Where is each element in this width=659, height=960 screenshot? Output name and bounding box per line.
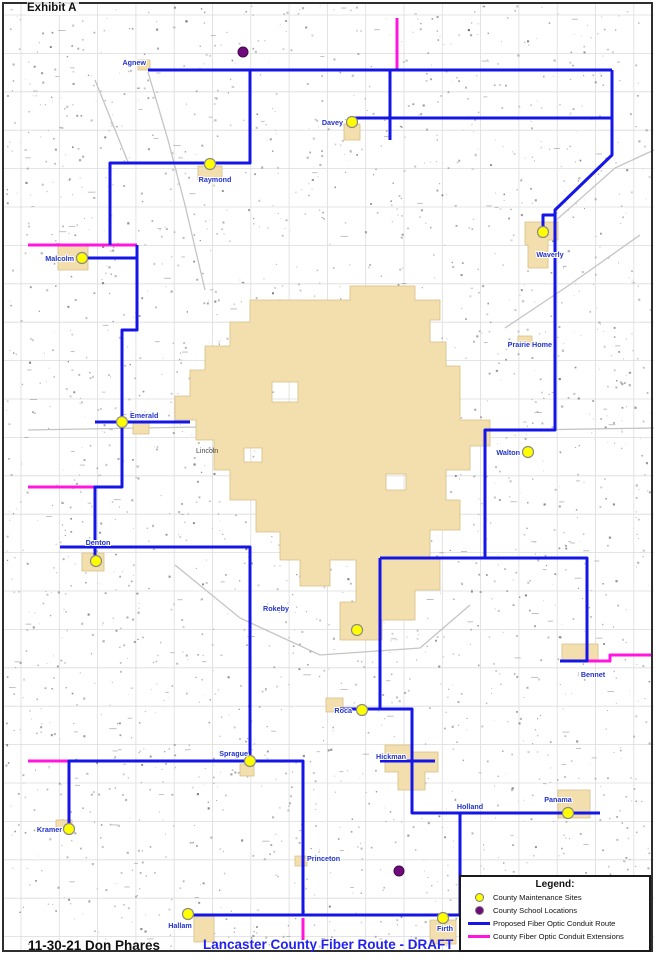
fiber-route-blue-segment [60,547,250,829]
fiber-extension-line-icon [468,935,490,938]
legend-box: Legend: County Maintenance Sites County … [459,875,651,952]
maintenance-site-dot-roca [357,705,368,716]
legend-title: Legend: [465,879,645,890]
maintenance-site-dot-hallam [183,909,194,920]
maintenance-site-dot-unlabeled [352,625,363,636]
site-label-walton: Walton [496,448,520,457]
school-location-dot-icon [475,906,484,915]
maintenance-site-dot-emerald [117,417,128,428]
place-label-hickman: Hickman [376,752,406,761]
fiber-route-blue-segment [82,245,137,258]
legend-item-label: County School Locations [493,906,577,915]
site-label-davey: Davey [322,118,343,127]
maintenance-site-dot-denton [91,556,102,567]
legend-symbol-cell [465,906,493,915]
map-page: DaveyRaymondMalcolmWaverlyEmeraldWaltonD… [0,0,659,960]
city-area-lincoln [175,286,490,640]
maintenance-site-dot-walton [523,447,534,458]
town-area-bennet [562,644,598,660]
place-label-bennet: Bennet [581,670,606,679]
exhibit-label: Exhibit A [27,2,79,15]
site-label-sprague: Sprague [219,749,248,758]
legend-item-school-locations: County School Locations [465,904,645,917]
legend-item-conduit-extensions: County Fiber Optic Conduit Extensions [465,930,645,943]
place-label-agnew: Agnew [122,58,146,67]
maintenance-site-dot-malcolm [77,253,88,264]
town-area-princeton [295,856,307,866]
fiber-route-blue-segment [485,70,612,661]
legend-item-label: County Maintenance Sites [493,893,582,902]
site-label-kramer: Kramer [37,825,62,834]
county-fiber-map: DaveyRaymondMalcolmWaverlyEmeraldWaltonD… [0,0,659,960]
site-label-raymond: Raymond [199,175,232,184]
site-label-waverly: Waverly [536,250,563,259]
site-label-malcolm: Malcolm [45,254,74,263]
maintenance-site-dot-panama [563,808,574,819]
legend-symbol-cell [465,922,493,925]
maintenance-site-dot-firth [438,913,449,924]
legend-item-label: County Fiber Optic Conduit Extensions [493,932,624,941]
school-location-dot-1 [394,866,404,876]
legend-item-label: Proposed Fiber Optic Conduit Route [493,919,615,928]
school-location-dot-0 [238,47,248,57]
fiber-route-blue-segment [250,761,303,915]
maintenance-site-dot-raymond [205,159,216,170]
site-label-denton: Denton [86,538,111,547]
legend-symbol-cell [465,893,493,902]
maintenance-site-dot-icon [475,893,484,902]
maintenance-site-dot-davey [347,117,358,128]
site-label-emerald: Emerald [130,411,158,420]
city-label-lincoln: Lincoln [196,448,218,455]
legend-item-conduit-route: Proposed Fiber Optic Conduit Route [465,917,645,930]
map-title: Lancaster County Fiber Route - DRAFT [203,937,454,952]
legend-symbol-cell [465,935,493,938]
fiber-route-line-icon [468,922,490,925]
site-label-firth: Firth [437,924,453,933]
place-label-rokeby: Rokeby [263,604,289,613]
legend-item-maintenance-sites: County Maintenance Sites [465,891,645,904]
site-label-roca: Roca [334,706,353,715]
fiber-route-blue-segment [95,245,137,561]
maintenance-site-dot-waverly [538,227,549,238]
place-label-holland: Holland [457,802,483,811]
site-label-panama: Panama [544,795,573,804]
place-label-princeton: Princeton [307,854,340,863]
site-label-hallam: Hallam [168,921,192,930]
place-label-prairie-home: Prairie Home [508,340,552,349]
city-limits-polygon [175,286,490,640]
footer-date-author: 11-30-21 Don Phares [28,938,160,953]
maintenance-site-dot-kramer [64,824,75,835]
